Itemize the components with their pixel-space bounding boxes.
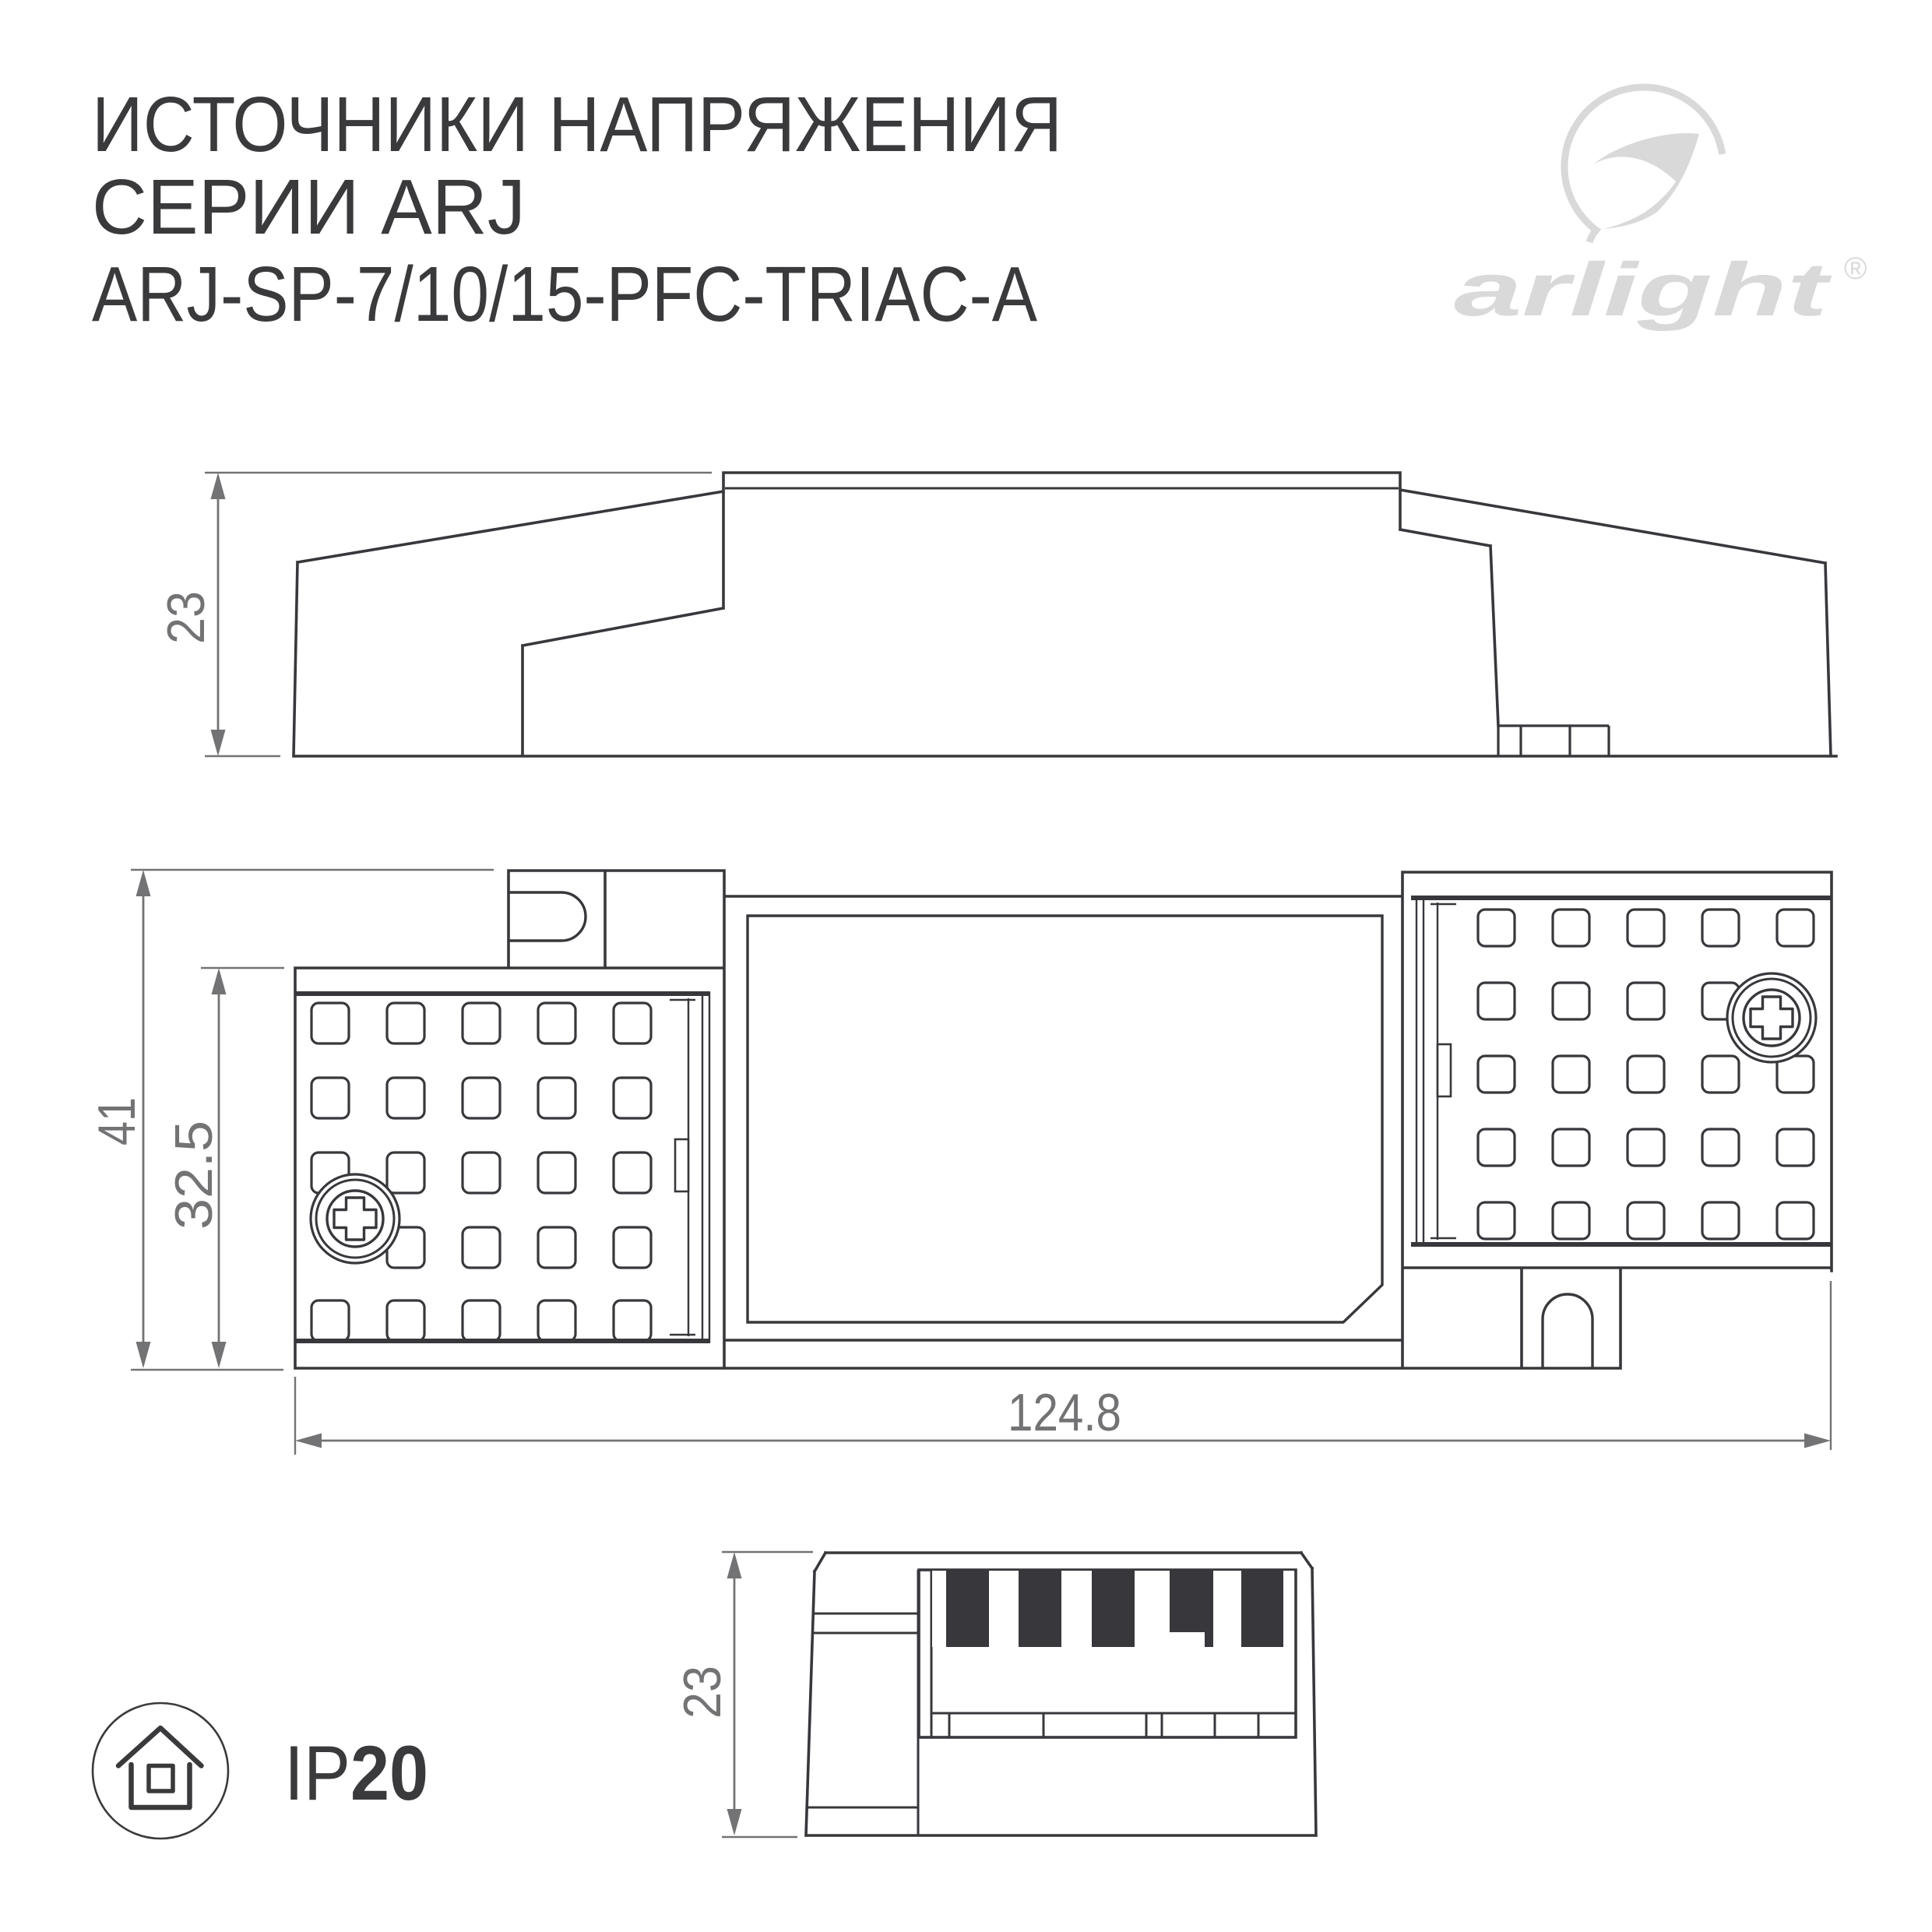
svg-text:23: 23 <box>673 1666 732 1719</box>
svg-text:СЕРИИ ARJ: СЕРИИ ARJ <box>92 164 526 251</box>
svg-text:arlight: arlight <box>1454 247 1832 332</box>
svg-text:23: 23 <box>157 591 216 644</box>
svg-text:32.5: 32.5 <box>164 1121 223 1230</box>
svg-text:®: ® <box>1844 252 1867 286</box>
svg-text:ARJ-SP-7/10/15-PFC-TRIAC-A: ARJ-SP-7/10/15-PFC-TRIAC-A <box>92 251 1037 338</box>
svg-text:124.8: 124.8 <box>1008 1383 1121 1442</box>
svg-text:41: 41 <box>87 1097 146 1145</box>
svg-text:ИСТОЧНИКИ НАПРЯЖЕНИЯ: ИСТОЧНИКИ НАПРЯЖЕНИЯ <box>92 81 1062 168</box>
svg-text:IP20: IP20 <box>284 1730 428 1816</box>
